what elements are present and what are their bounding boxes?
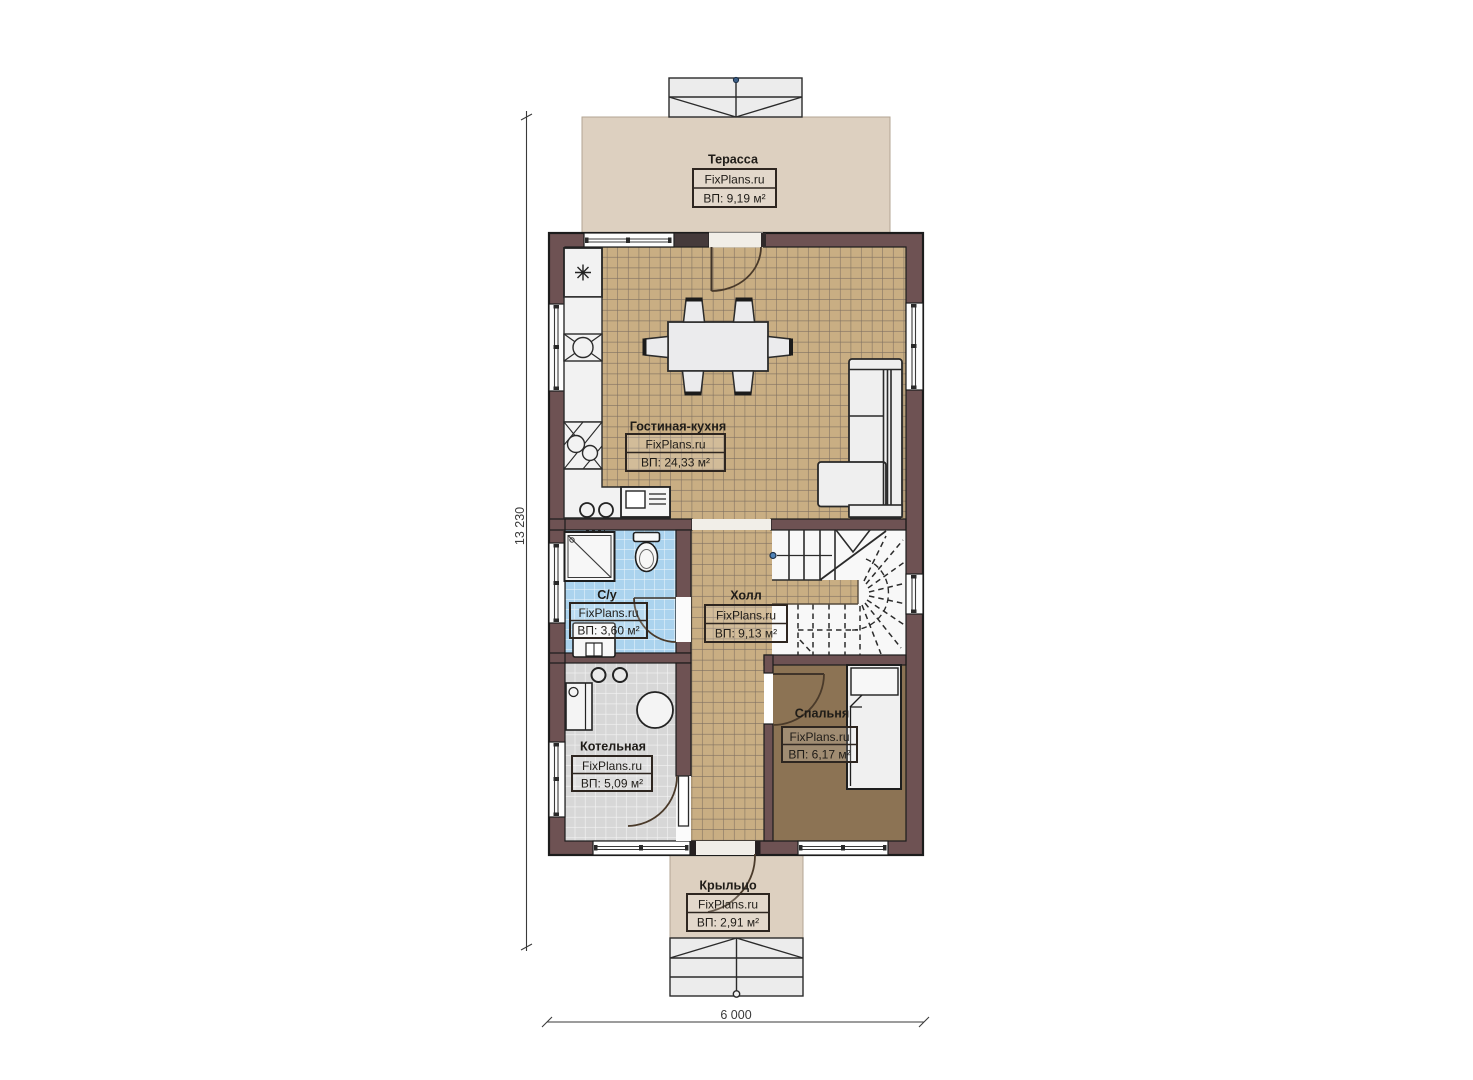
svg-text:Терасса: Терасса bbox=[708, 153, 759, 167]
svg-text:FixPlans.ru: FixPlans.ru bbox=[704, 173, 764, 187]
svg-text:FixPlans.ru: FixPlans.ru bbox=[645, 438, 705, 452]
svg-text:13 230: 13 230 bbox=[513, 507, 527, 545]
svg-text:FixPlans.ru: FixPlans.ru bbox=[789, 730, 849, 744]
svg-text:ВП: 5,09 м²: ВП: 5,09 м² bbox=[581, 777, 643, 791]
svg-text:FixPlans.ru: FixPlans.ru bbox=[698, 898, 758, 912]
svg-text:Спальня: Спальня bbox=[795, 707, 849, 721]
svg-text:FixPlans.ru: FixPlans.ru bbox=[716, 609, 776, 623]
svg-text:ВП: 9,13 м²: ВП: 9,13 м² bbox=[715, 627, 777, 641]
svg-text:Котельная: Котельная bbox=[580, 740, 646, 754]
svg-text:FixPlans.ru: FixPlans.ru bbox=[582, 759, 642, 773]
svg-text:ВП: 3,60 м²: ВП: 3,60 м² bbox=[577, 624, 639, 638]
svg-text:6 000: 6 000 bbox=[720, 1008, 751, 1022]
svg-text:Холл: Холл bbox=[730, 589, 762, 603]
svg-text:ВП: 9,19 м²: ВП: 9,19 м² bbox=[703, 192, 765, 206]
svg-text:С/у: С/у bbox=[597, 588, 617, 602]
svg-text:ВП: 2,91 м²: ВП: 2,91 м² bbox=[697, 916, 759, 930]
svg-text:Крыльцо: Крыльцо bbox=[699, 879, 757, 893]
svg-text:FixPlans.ru: FixPlans.ru bbox=[578, 606, 638, 620]
svg-text:Гостиная-кухня: Гостиная-кухня bbox=[630, 420, 727, 434]
svg-text:ВП: 6,17 м²: ВП: 6,17 м² bbox=[788, 748, 850, 762]
svg-text:ВП: 24,33 м²: ВП: 24,33 м² bbox=[641, 456, 710, 470]
